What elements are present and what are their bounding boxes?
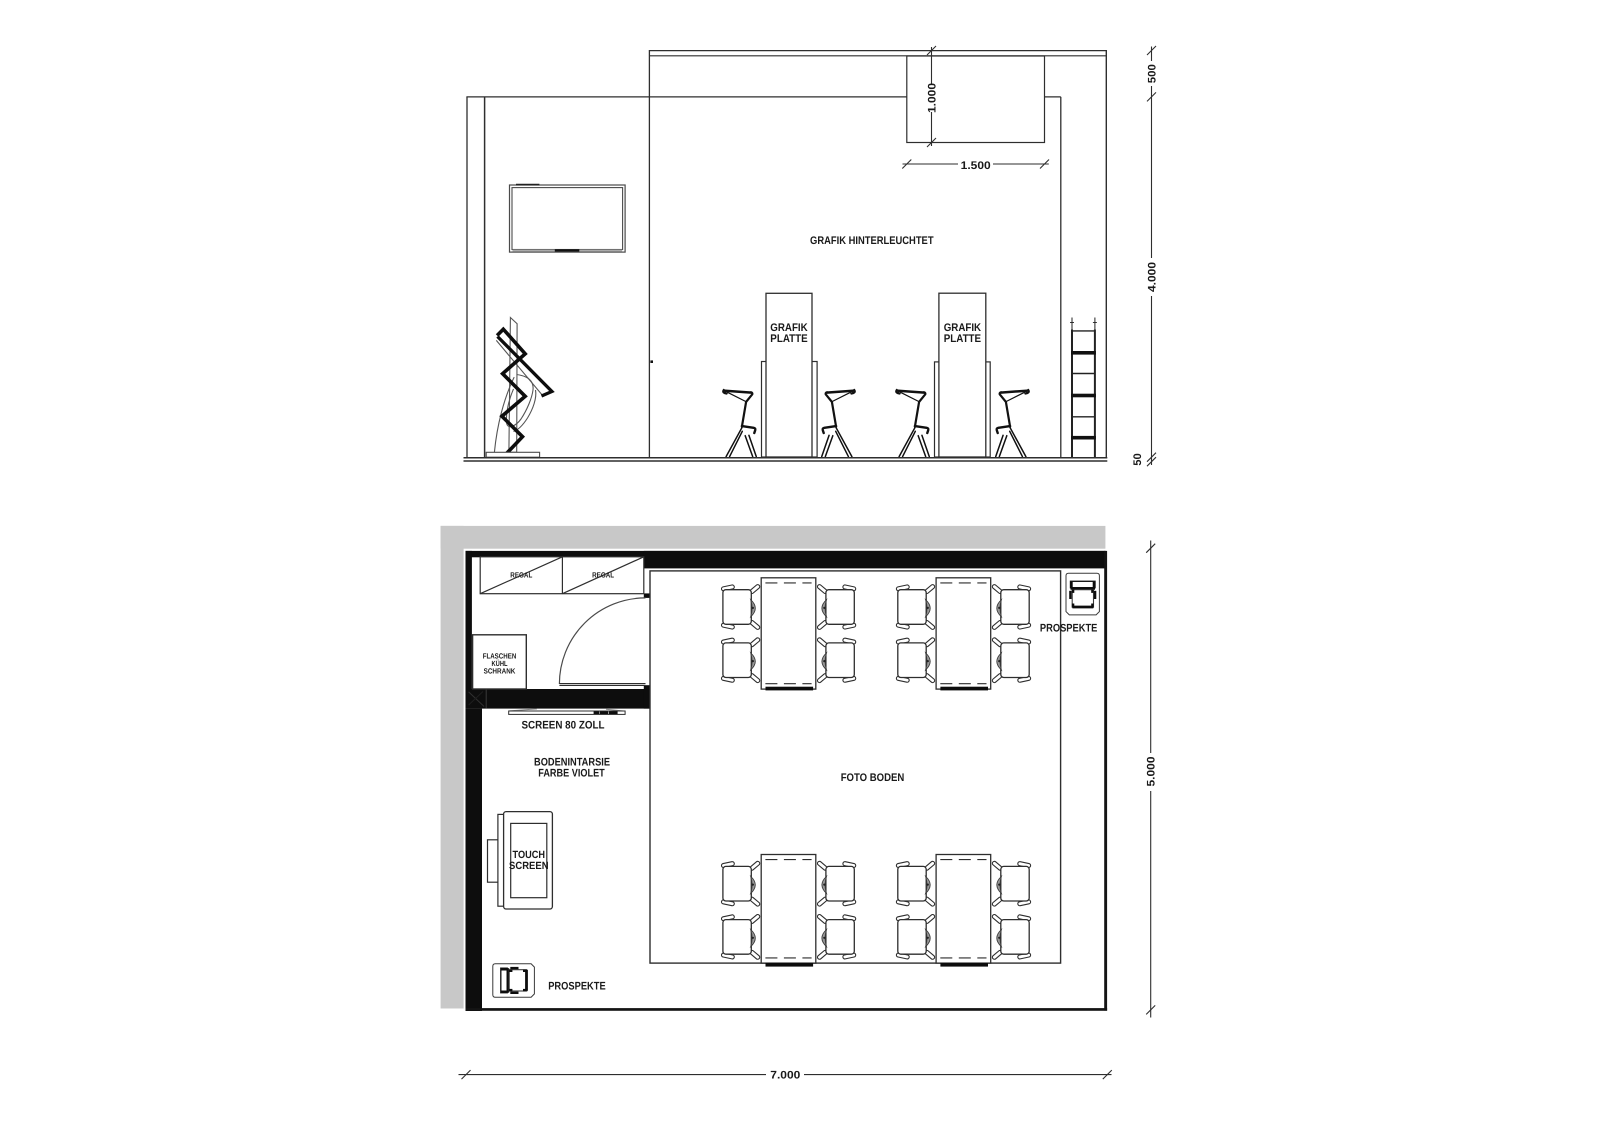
- svg-text:GRAFIK HINTERLEUCHTET: GRAFIK HINTERLEUCHTET: [810, 235, 934, 247]
- svg-text:1.500: 1.500: [961, 160, 991, 172]
- svg-text:1.000: 1.000: [927, 83, 939, 113]
- svg-text:7.000: 7.000: [770, 1070, 800, 1082]
- svg-text:5.000: 5.000: [1146, 757, 1158, 787]
- svg-text:GRAFIK: GRAFIK: [944, 322, 981, 334]
- svg-text:500: 500: [1147, 64, 1159, 83]
- svg-text:4.000: 4.000: [1147, 262, 1159, 292]
- svg-text:50: 50: [1132, 453, 1144, 466]
- svg-text:SCREEN 80 ZOLL: SCREEN 80 ZOLL: [522, 720, 605, 732]
- svg-text:REGAL: REGAL: [510, 570, 532, 579]
- svg-text:REGAL: REGAL: [592, 570, 614, 579]
- svg-text:BODENINTARSIE: BODENINTARSIE: [534, 756, 610, 768]
- svg-text:PROSPEKTE: PROSPEKTE: [548, 981, 606, 993]
- svg-text:PLATTE: PLATTE: [770, 333, 807, 345]
- svg-text:SCHRANK: SCHRANK: [484, 666, 516, 675]
- svg-text:PROSPEKTE: PROSPEKTE: [1040, 623, 1098, 635]
- svg-text:PLATTE: PLATTE: [944, 333, 981, 345]
- svg-text:SCREEN: SCREEN: [509, 860, 549, 872]
- svg-text:GRAFIK: GRAFIK: [770, 322, 807, 334]
- svg-text:FARBE VIOLET: FARBE VIOLET: [538, 768, 605, 780]
- svg-text:FOTO BODEN: FOTO BODEN: [841, 772, 905, 784]
